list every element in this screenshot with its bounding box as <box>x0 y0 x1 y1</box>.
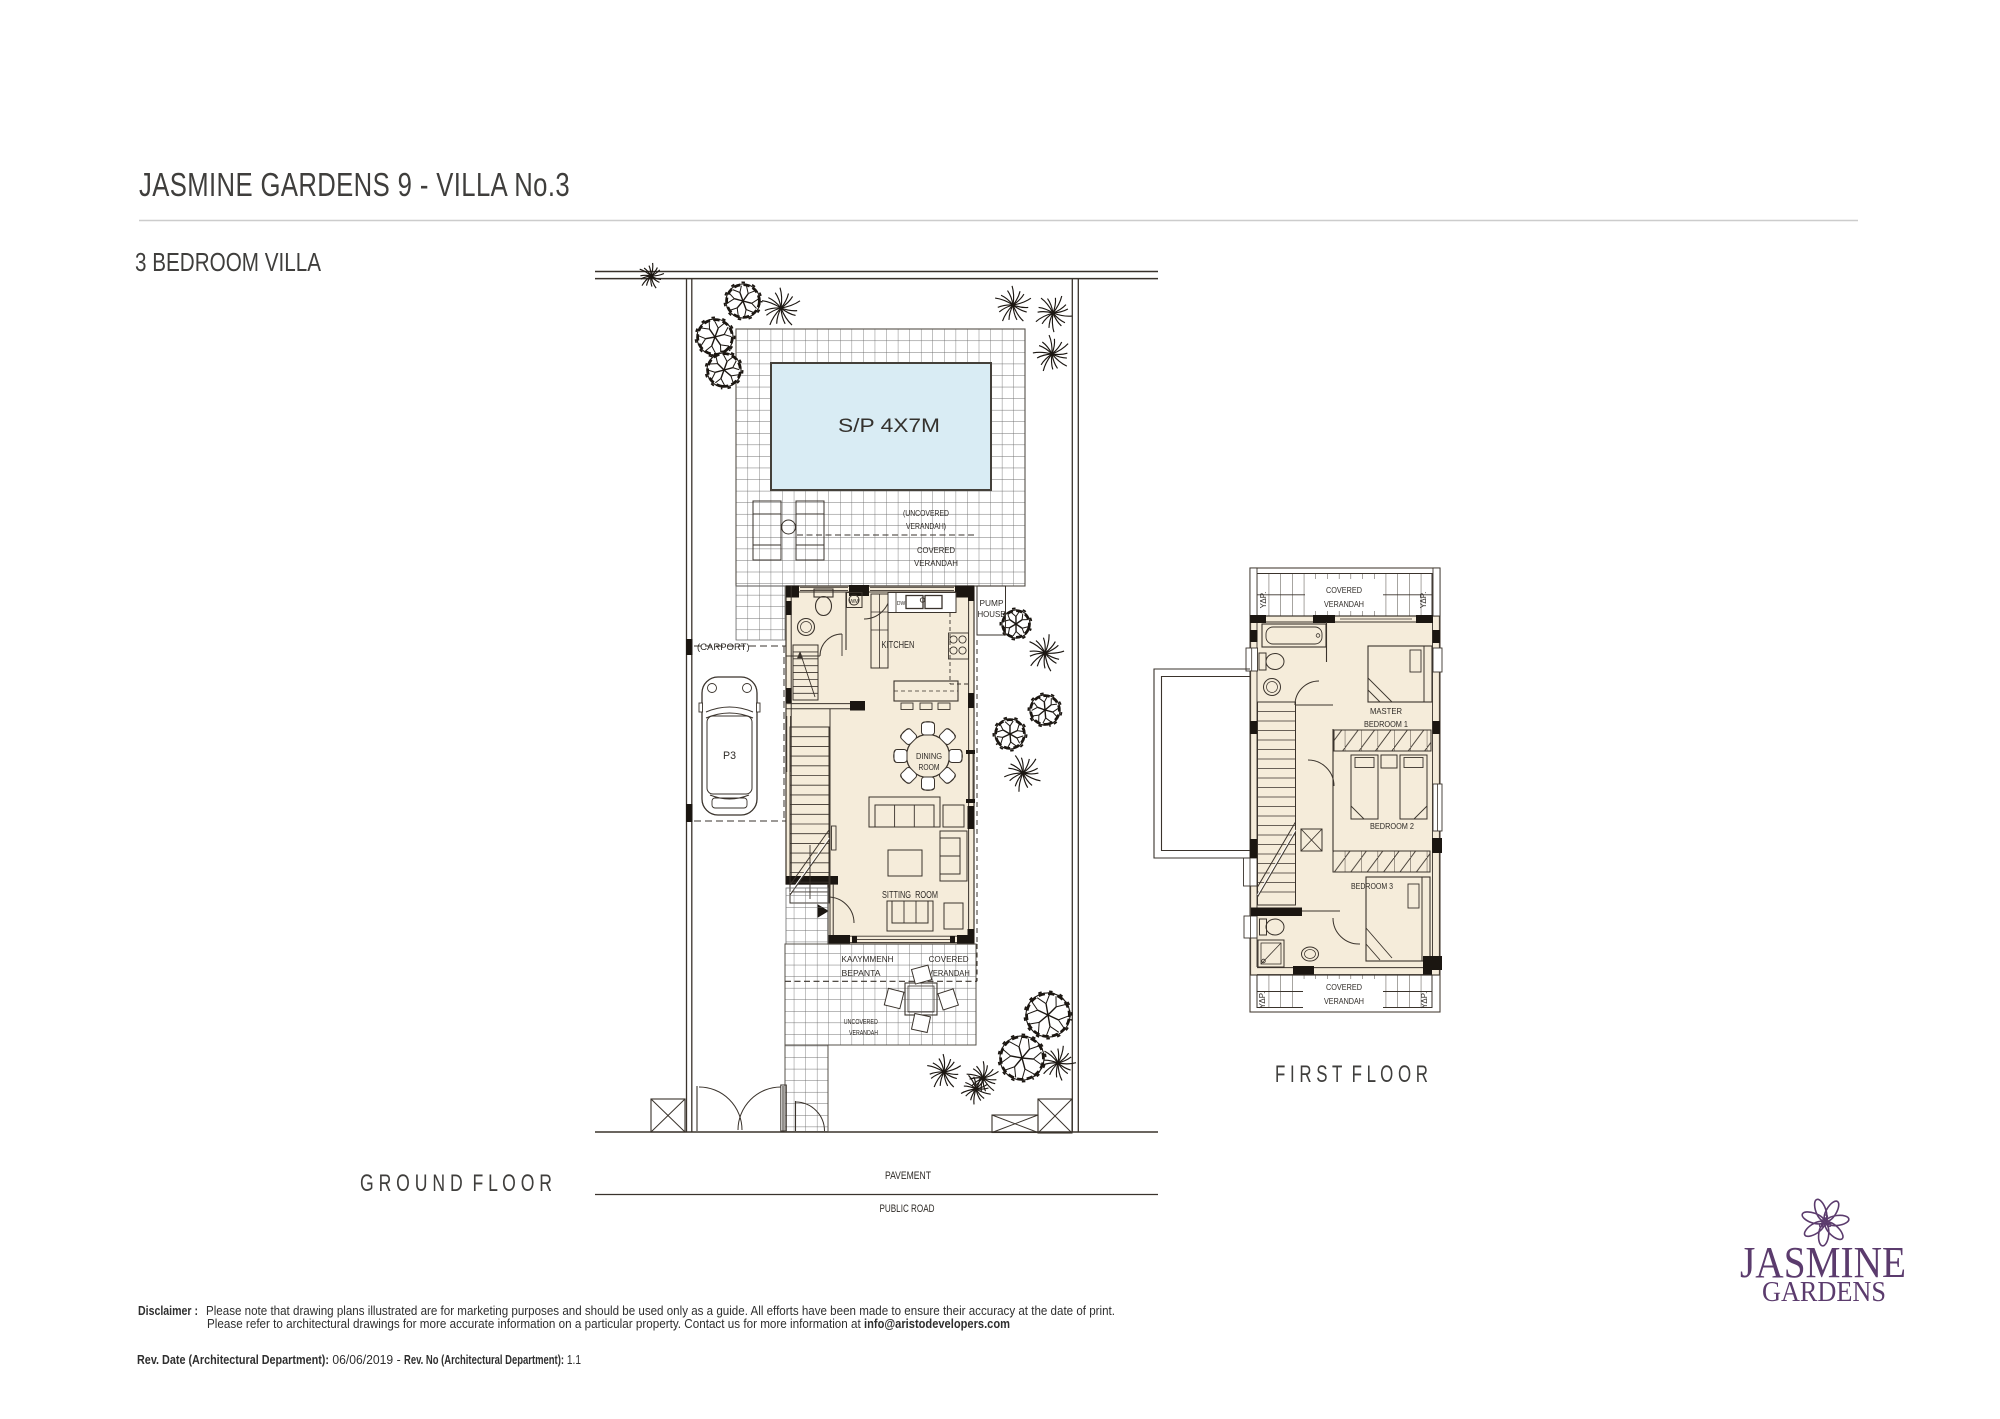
svg-text:PUMP: PUMP <box>980 598 1004 608</box>
svg-text:Please refer to architectural: Please refer to architectural drawings f… <box>207 1317 1010 1331</box>
svg-text:ΥΔΡ.: ΥΔΡ. <box>1420 992 1429 1009</box>
svg-text:P3: P3 <box>723 750 736 762</box>
svg-text:COVERED: COVERED <box>929 954 969 964</box>
svg-text:ΒΕΡΑΝΤΑ: ΒΕΡΑΝΤΑ <box>842 968 881 978</box>
svg-text:VERANDAH: VERANDAH <box>1324 996 1364 1006</box>
svg-text:GARDENS: GARDENS <box>1762 1277 1886 1308</box>
svg-text:ΚΑΛΥΜΜΕΝΗ: ΚΑΛΥΜΜΕΝΗ <box>842 954 894 964</box>
svg-text:COVERED: COVERED <box>1326 982 1362 992</box>
svg-text:(UNCOVERED: (UNCOVERED <box>903 508 949 518</box>
svg-text:HOUSE: HOUSE <box>978 609 1006 619</box>
svg-text:MASTER: MASTER <box>1370 706 1402 716</box>
svg-text:S/P 4X7M: S/P 4X7M <box>838 416 940 437</box>
svg-text:VERANDAH): VERANDAH) <box>906 521 946 531</box>
svg-text:ΥΔΡ.: ΥΔΡ. <box>1259 592 1268 609</box>
svg-text:Rev. Date (Architectural Depar: Rev. Date (Architectural Department): 06… <box>137 1353 581 1367</box>
svg-text:JASMINE GARDENS 9 - VILLA No.3: JASMINE GARDENS 9 - VILLA No.3 <box>139 166 570 203</box>
svg-text:BEDROOM 3: BEDROOM 3 <box>1351 881 1393 891</box>
svg-text:ΥΔΡ.: ΥΔΡ. <box>1258 992 1267 1009</box>
svg-text:DW: DW <box>897 601 906 607</box>
svg-text:PAVEMENT: PAVEMENT <box>885 1170 931 1182</box>
svg-text:COVERED: COVERED <box>917 545 955 555</box>
svg-text:VERANDAH: VERANDAH <box>914 558 958 568</box>
svg-text:BEDROOM 1: BEDROOM 1 <box>1364 719 1408 729</box>
svg-text:BEDROOM 2: BEDROOM 2 <box>1370 821 1414 831</box>
svg-text:KITCHEN: KITCHEN <box>882 640 915 651</box>
svg-text:G R O U N D F L O O R: G R O U N D F L O O R <box>360 1170 552 1197</box>
svg-text:PUBLIC ROAD: PUBLIC ROAD <box>880 1203 935 1215</box>
svg-text:WM: WM <box>849 599 859 605</box>
svg-text:3 BEDROOM VILLA: 3 BEDROOM VILLA <box>135 247 322 277</box>
svg-text:(CARPORT): (CARPORT) <box>697 642 750 653</box>
svg-text:VERANDAH: VERANDAH <box>849 1028 878 1037</box>
svg-text:COVERED: COVERED <box>1326 585 1362 595</box>
svg-text:VERANDAH: VERANDAH <box>1324 599 1364 609</box>
svg-text:UNCOVERED: UNCOVERED <box>844 1017 878 1026</box>
svg-text:ROOM: ROOM <box>919 762 940 772</box>
svg-text:F I R S T F L O O R: F I R S T F L O O R <box>1275 1061 1428 1088</box>
svg-text:SITTING ROOM: SITTING ROOM <box>882 890 938 901</box>
svg-text:Disclaimer :Please note that d: Disclaimer :Please note that drawing pla… <box>138 1304 1115 1318</box>
svg-text:ΥΔΡ.: ΥΔΡ. <box>1419 592 1428 609</box>
svg-text:VERANDAH: VERANDAH <box>928 968 970 978</box>
svg-text:DINING: DINING <box>916 751 942 761</box>
